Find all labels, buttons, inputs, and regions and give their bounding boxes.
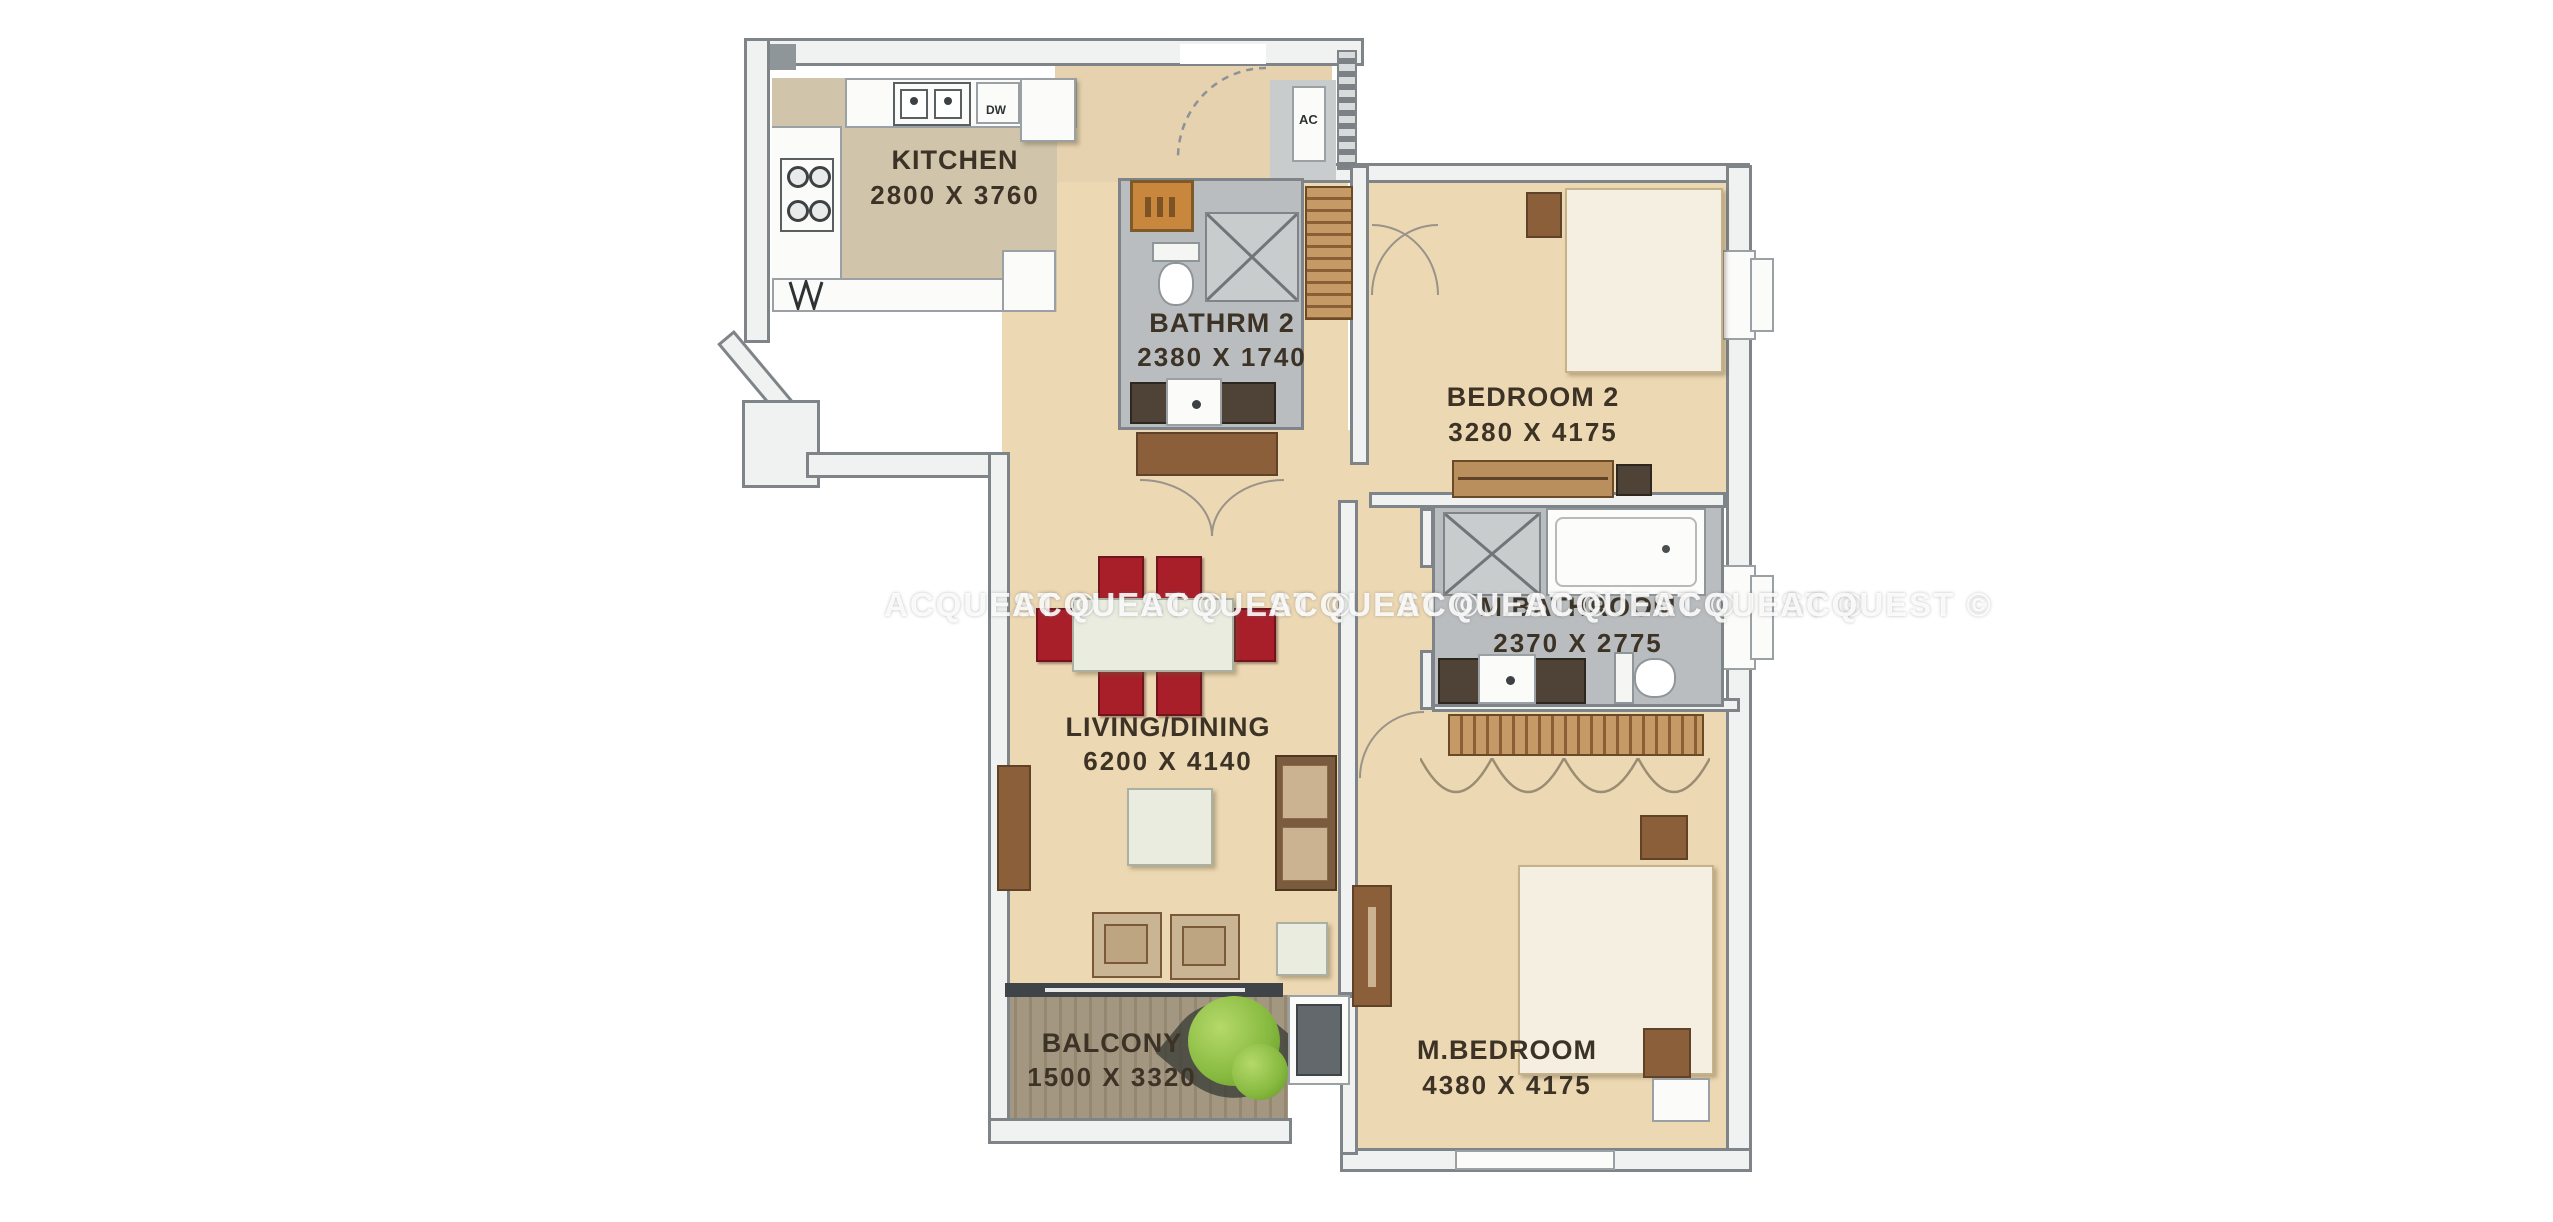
shower2-icon [1205, 212, 1299, 302]
hob [780, 158, 834, 232]
mvanity-faucet-dot [1506, 676, 1515, 685]
mbedroom-dresser [1352, 885, 1392, 1007]
wall-kitchen-left [744, 38, 770, 343]
faucet-dot-right [944, 97, 952, 105]
mbedroom-nightstand-top [1640, 815, 1688, 860]
burner-3 [787, 200, 809, 222]
burner-1 [787, 166, 809, 188]
water-heater-closet [1130, 180, 1194, 232]
dishwasher-label: DW [986, 103, 1006, 117]
hall-door-arc-left-icon [1140, 480, 1212, 536]
bedroom2-wardrobe [1452, 460, 1614, 498]
mvanity-sink [1478, 654, 1536, 704]
mbedroom-dims: 4380 X 4175 [1422, 1070, 1591, 1101]
vanity2-faucet-dot [1192, 400, 1201, 409]
watermark-text: ACQUEST © [1780, 585, 1993, 625]
utility-shaft-core [1296, 1004, 1342, 1076]
bedroom2-wardrobe-end [1616, 464, 1652, 496]
kitchen-sink-unit [893, 82, 971, 126]
mbedroom-window-sill [1652, 1078, 1710, 1122]
faucet-dot-left [910, 97, 918, 105]
bedroom2-dims: 3280 X 4175 [1448, 417, 1617, 448]
water-heater-marks [1145, 197, 1181, 217]
bedroom2-label: BEDROOM 2 [1447, 382, 1620, 413]
washing-machine-symbol-icon [788, 280, 834, 310]
mtoilet-tank [1614, 652, 1634, 704]
wall-lower-left-horizontal [806, 452, 1008, 478]
armchair-2-seat [1182, 926, 1226, 966]
ac-label: AC [1299, 112, 1318, 127]
balcony-label: BALCONY [1042, 1028, 1183, 1059]
bedroom2-nightstand [1526, 192, 1562, 238]
mbedroom-nightstand-bottom [1643, 1028, 1691, 1078]
wall-balcony-rail [988, 1118, 1292, 1144]
hall-console [1136, 432, 1278, 476]
mbedroom-label: M.BEDROOM [1417, 1035, 1597, 1066]
coffee-table [1127, 788, 1213, 866]
entry-door-arc-icon [1178, 66, 1266, 158]
living-dims: 6200 X 4140 [1083, 746, 1252, 777]
toilet2-tank [1152, 242, 1200, 262]
vanity2-sink [1166, 378, 1222, 426]
bathtub-icon [1546, 508, 1706, 596]
mtoilet-bowl-icon [1634, 658, 1676, 698]
living-label: LIVING/DINING [1065, 712, 1270, 743]
kitchen-dims: 2800 X 3760 [870, 180, 1039, 211]
bathrm2-label: BATHRM 2 [1149, 308, 1295, 339]
balcony-door-threshold [1005, 983, 1283, 997]
side-table [1276, 922, 1328, 976]
balcony-dims: 1500 X 3320 [1027, 1062, 1196, 1093]
armchair-1 [1092, 912, 1162, 978]
toilet2-bowl-icon [1158, 262, 1194, 306]
mbedroom-wardrobe [1448, 714, 1704, 756]
entry-door-opening [1180, 44, 1266, 64]
bedroom2-bed [1565, 188, 1723, 373]
bathrm2-dims: 2380 X 1740 [1137, 342, 1306, 373]
kitchen-label: KITCHEN [892, 145, 1019, 176]
corner-pillar [766, 44, 796, 70]
window-mbedroom-bottom [1455, 1150, 1615, 1170]
wall-hatch-entry [1337, 50, 1357, 170]
tv-cabinet [997, 765, 1031, 891]
armchair-1-seat [1104, 924, 1148, 964]
plant-small-icon [1232, 1044, 1288, 1100]
burner-2 [809, 166, 831, 188]
mbedroom-door-arc-icon [1360, 712, 1424, 778]
balcony-door-track [1045, 988, 1245, 992]
hall-door-arc-right-icon [1212, 480, 1284, 536]
floorplan-canvas: DW KITCHEN 2800 X 3760 AC BATHRM 2 2380 … [0, 0, 2553, 1222]
linen-closet-shelves [1305, 186, 1353, 320]
mshower-icon [1443, 512, 1541, 596]
kitchen-island-block [1020, 78, 1076, 142]
sofa-cushion-1 [1282, 765, 1328, 819]
mbathroom-dims: 2370 X 2775 [1493, 628, 1662, 659]
armchair-2 [1170, 914, 1240, 980]
fridge [1002, 250, 1056, 312]
mbedroom-dresser-handle [1368, 907, 1376, 987]
sofa-cushion-2 [1282, 827, 1328, 881]
window-sill-bedroom2 [1750, 258, 1774, 332]
dining-chair-bottom-2 [1156, 668, 1202, 716]
burner-4 [809, 200, 831, 222]
sofa [1275, 755, 1337, 891]
bedroom2-door-arc-icon [1372, 225, 1438, 295]
dining-chair-bottom-1 [1098, 668, 1144, 716]
wall-top [744, 38, 1364, 66]
